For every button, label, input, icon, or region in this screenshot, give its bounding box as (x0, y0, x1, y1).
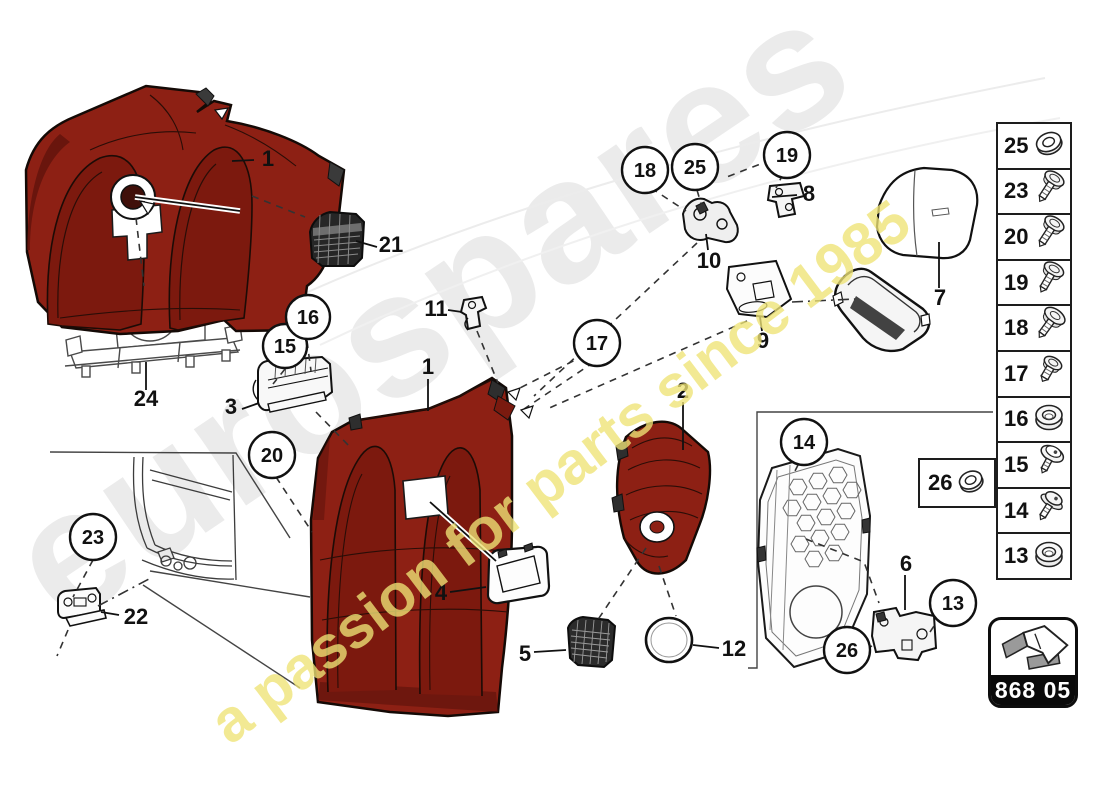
parts-diagram-page: eurospares (0, 0, 1100, 800)
label-part-4[interactable]: 4 (435, 580, 448, 605)
circle-label-13[interactable]: 13 (930, 580, 976, 626)
svg-text:17: 17 (586, 333, 608, 355)
part-12-cover-cap[interactable] (646, 618, 692, 662)
label-part-10[interactable]: 10 (697, 248, 721, 273)
fastener-item-14[interactable]: 14 (996, 487, 1072, 535)
label-part-1[interactable]: 1 (262, 146, 274, 171)
label-part-9[interactable]: 9 (757, 328, 769, 353)
circle-label-25[interactable]: 25 (672, 144, 718, 190)
svg-text:23: 23 (82, 527, 104, 549)
label-part-8[interactable]: 8 (803, 181, 815, 206)
fastener-number: 13 (1004, 543, 1028, 569)
fastener-number: 20 (1004, 224, 1028, 250)
label-part-21[interactable]: 21 (379, 232, 403, 257)
grommet-icon (1031, 396, 1067, 443)
washer-screw-icon (1031, 486, 1067, 535)
fastener-number: 23 (1004, 178, 1028, 204)
part-8-bracket[interactable] (768, 183, 804, 217)
screw-icon (1031, 258, 1067, 307)
label-part-3[interactable]: 3 (225, 394, 237, 419)
washer-screw-icon (1031, 440, 1067, 489)
fastener-item-23[interactable]: 23 (996, 168, 1072, 216)
fastener-number: 19 (1004, 270, 1028, 296)
fastener-item-17[interactable]: 17 (996, 350, 1072, 398)
fastener-reference-column: 25 23 20 (996, 122, 1072, 580)
washer-nut-icon (1031, 122, 1067, 169)
washer-nut-icon (954, 463, 988, 504)
svg-text:16: 16 (297, 307, 319, 329)
label-part-24[interactable]: 24 (134, 386, 159, 411)
fastener-number: 18 (1004, 315, 1028, 341)
fastener-item-18[interactable]: 18 (996, 304, 1072, 352)
part-2-pillar-trim[interactable] (612, 422, 710, 574)
fastener-number: 14 (1004, 498, 1028, 524)
part-7-quarter-panel[interactable] (833, 168, 977, 351)
part-6-bracket[interactable] (872, 608, 936, 660)
label-part-6[interactable]: 6 (900, 551, 912, 576)
label-part-1b[interactable]: 1 (422, 354, 434, 379)
screw-icon (1031, 304, 1067, 353)
fastener-number: 16 (1004, 406, 1028, 432)
window-frame-art (134, 455, 236, 580)
screw-short-icon (1031, 350, 1067, 397)
fastener-item-25[interactable]: 25 (996, 122, 1072, 170)
svg-text:15: 15 (274, 336, 296, 358)
circle-label-19[interactable]: 19 (764, 132, 810, 178)
label-part-7[interactable]: 7 (934, 285, 946, 310)
page-code-box[interactable]: 868 05 (988, 617, 1078, 708)
circle-label-14[interactable]: 14 (781, 419, 827, 465)
part-22-bracket[interactable] (58, 588, 106, 626)
part-11-bracket[interactable] (461, 297, 486, 330)
part-10-latch-bracket[interactable] (683, 199, 738, 242)
fastener-number: 26 (928, 470, 952, 496)
fastener-item-20[interactable]: 20 (996, 213, 1072, 261)
circle-label-17[interactable]: 17 (574, 320, 620, 366)
label-part-12[interactable]: 12 (722, 636, 746, 661)
svg-text:18: 18 (634, 160, 656, 182)
svg-text:20: 20 (261, 445, 283, 467)
svg-text:25: 25 (684, 157, 706, 179)
label-part-2[interactable]: 2 (677, 378, 689, 403)
circle-label-26[interactable]: 26 (824, 627, 870, 673)
screw-icon (1031, 167, 1067, 216)
fastener-item-13[interactable]: 13 (996, 532, 1072, 580)
fastener-number: 17 (1004, 361, 1028, 387)
part-5-speaker-grille[interactable] (568, 617, 615, 667)
svg-text:13: 13 (942, 593, 964, 615)
svg-text:14: 14 (793, 432, 816, 454)
label-part-11[interactable]: 11 (424, 296, 447, 321)
part-21-speaker-grille[interactable] (310, 212, 364, 266)
svg-text:26: 26 (836, 640, 858, 662)
page-code-label: 868 05 (991, 675, 1075, 705)
grommet-icon (1031, 533, 1067, 580)
circle-label-18[interactable]: 18 (622, 147, 668, 193)
part-4-vent-bezel[interactable] (488, 543, 549, 603)
fastener-number: 25 (1004, 133, 1028, 159)
fastener-item-15[interactable]: 15 (996, 441, 1072, 489)
fastener-number: 15 (1004, 452, 1028, 478)
screw-icon (1031, 212, 1067, 261)
label-part-5[interactable]: 5 (519, 641, 531, 666)
part-1-rear-wall-trim-iso[interactable] (26, 86, 344, 334)
circle-label-20[interactable]: 20 (249, 432, 295, 478)
label-part-22[interactable]: 22 (124, 604, 148, 629)
circle-label-23[interactable]: 23 (70, 514, 116, 560)
fastener-item-16[interactable]: 16 (996, 396, 1072, 444)
direction-arrow-3d-icon (991, 620, 1075, 675)
svg-text:19: 19 (776, 145, 798, 167)
circle-label-16[interactable]: 16 (286, 295, 330, 339)
fastener-item-26[interactable]: 26 (918, 458, 996, 508)
part-9-mount-plate[interactable] (727, 261, 791, 317)
exploded-parts-diagram: 1 21 24 3 11 10 8 9 7 2 1 4 5 12 22 6 23 (0, 0, 1100, 800)
fastener-item-19[interactable]: 19 (996, 259, 1072, 307)
